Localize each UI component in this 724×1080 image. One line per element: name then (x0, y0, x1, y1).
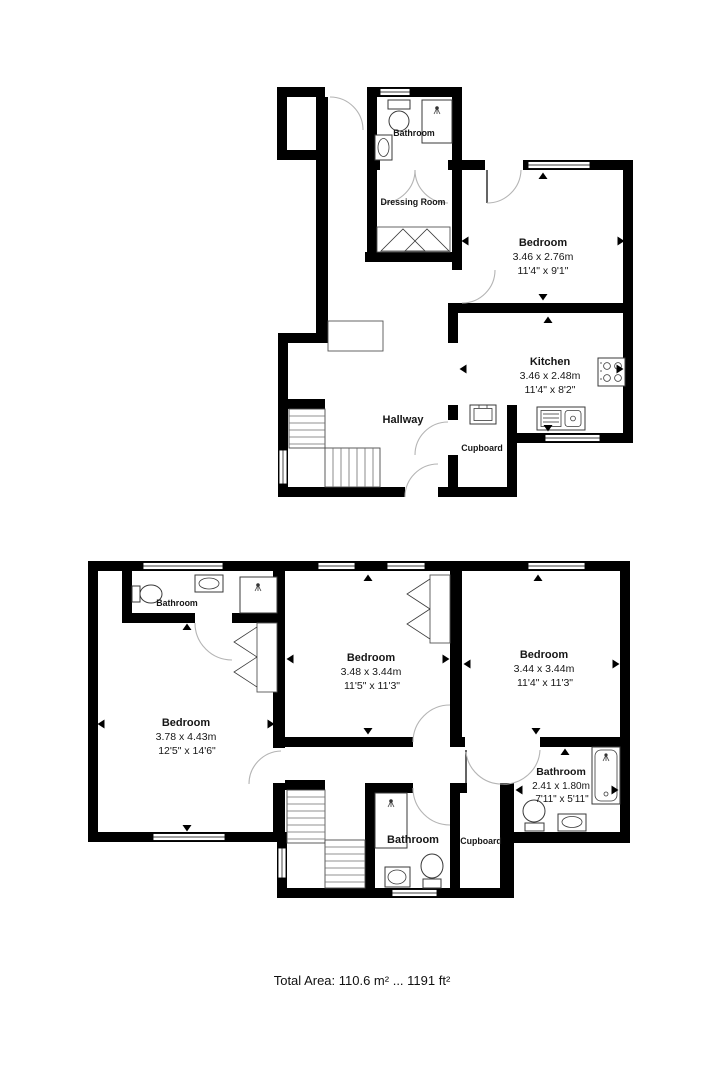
window (318, 563, 355, 570)
bathroom-right-size-metric: 2.41 x 1.80m (532, 781, 590, 792)
window (387, 563, 425, 570)
bedroom-left-name: Bedroom (162, 717, 211, 729)
sink-icon (375, 135, 392, 160)
bedroom-right-size-imperial: 11'4" x 11'3" (517, 677, 573, 689)
bathroom-right-size-imperial: 7'11" x 5'11" (535, 794, 589, 805)
hallway-label: Hallway (383, 414, 425, 426)
bathtub-icon (592, 747, 620, 804)
toilet-icon (388, 100, 410, 131)
boiler-icon (470, 405, 496, 424)
sink-icon (558, 814, 586, 831)
upper-bedroom-size-imperial: 11'4" x 9'1" (518, 265, 569, 277)
upper-bedroom-name: Bedroom (519, 237, 568, 249)
bedroom-right-size-metric: 3.44 x 3.44m (514, 663, 575, 675)
bathroom-middle-label: Bathroom (387, 834, 439, 846)
bedroom-left-size-metric: 3.78 x 4.43m (156, 731, 217, 743)
window (278, 848, 286, 878)
sink-icon (195, 575, 223, 592)
hob-icon (598, 358, 625, 386)
window (545, 435, 600, 442)
kitchen-size-imperial: 11'4" x 8'2" (525, 384, 576, 396)
ensuite-bathroom-label: Bathroom (156, 598, 198, 608)
window (143, 563, 223, 570)
hallway-cabinet-icon (328, 321, 383, 351)
window (528, 162, 590, 169)
kitchen-size-metric: 3.46 x 2.48m (520, 370, 581, 382)
bedroom-middle-size-metric: 3.48 x 3.44m (341, 666, 402, 678)
window (392, 890, 437, 897)
floorplan-page: Bathroom Dressing Room Bedroom 3.46 x 2.… (0, 0, 724, 1080)
window (279, 450, 287, 484)
bedroom-left-size-imperial: 12'5" x 14'6" (158, 745, 216, 757)
wardrobe-icon (377, 227, 450, 252)
sink-icon (385, 867, 410, 887)
window (528, 563, 585, 570)
kitchen-sink-icon (537, 407, 585, 430)
upper-bedroom-size-metric: 3.46 x 2.76m (513, 251, 574, 263)
lower-cupboard-label: Cupboard (460, 836, 502, 846)
bathroom-right-name: Bathroom (536, 766, 586, 778)
kitchen-name: Kitchen (530, 356, 571, 368)
window (153, 834, 225, 841)
bedroom-middle-name: Bedroom (347, 652, 396, 664)
toilet-icon (421, 854, 443, 888)
upper-bathroom-label: Bathroom (393, 128, 435, 138)
bedroom-right-name: Bedroom (520, 649, 569, 661)
shower-icon (240, 577, 277, 613)
dressing-room-label: Dressing Room (380, 197, 445, 207)
window (380, 89, 410, 96)
bedroom-middle-size-imperial: 11'5" x 11'3" (344, 680, 400, 692)
upper-cupboard-label: Cupboard (461, 443, 503, 453)
total-area-text: Total Area: 110.6 m² ... 1191 ft² (274, 973, 451, 988)
